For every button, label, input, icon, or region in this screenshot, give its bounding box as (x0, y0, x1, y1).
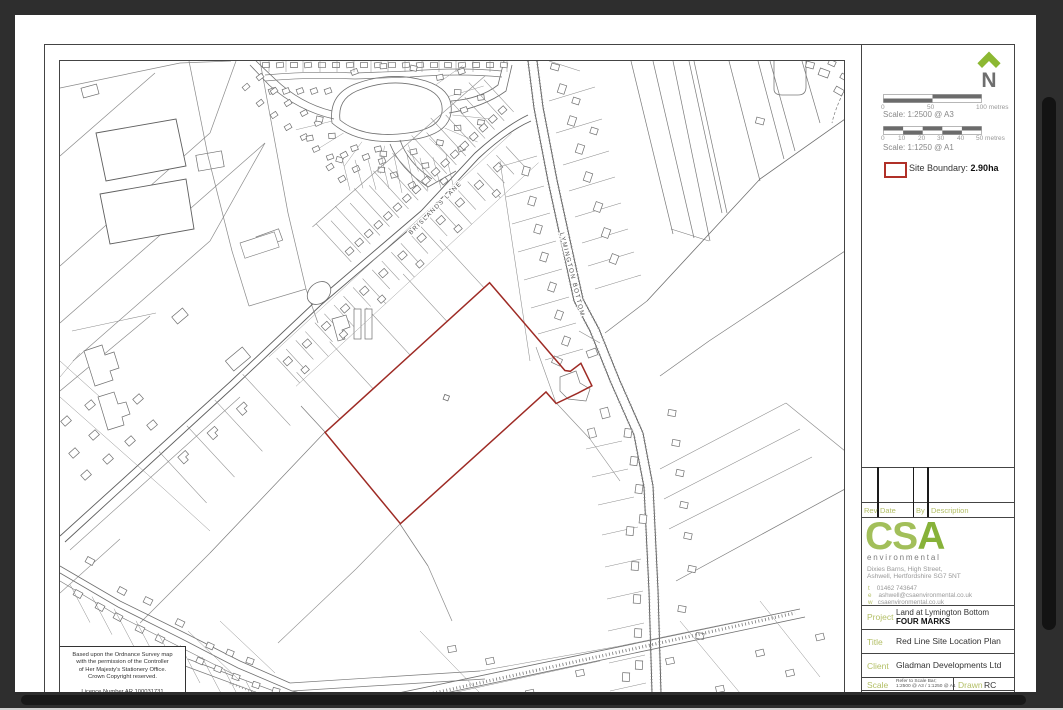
svg-text:N: N (981, 69, 996, 92)
